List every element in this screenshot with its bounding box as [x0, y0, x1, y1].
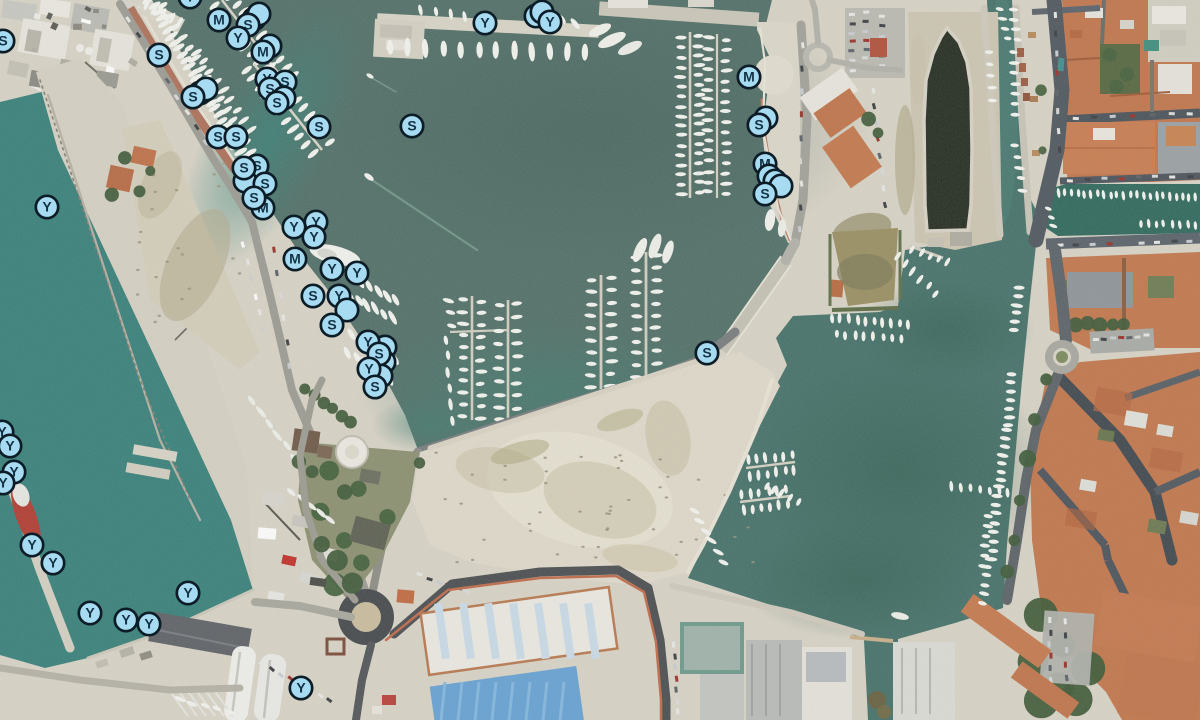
svg-text:S: S — [407, 118, 416, 134]
svg-text:Y: Y — [121, 612, 131, 628]
svg-text:Y: Y — [144, 616, 154, 632]
svg-text:S: S — [754, 117, 763, 133]
svg-text:Y: Y — [183, 585, 193, 601]
svg-text:S: S — [231, 129, 240, 145]
svg-text:M: M — [289, 251, 301, 267]
svg-text:S: S — [154, 47, 163, 63]
svg-text:Y: Y — [5, 438, 15, 454]
svg-text:Y: Y — [42, 199, 52, 215]
svg-text:Y: Y — [85, 605, 95, 621]
svg-text:Y: Y — [352, 265, 362, 281]
svg-text:M: M — [257, 44, 269, 60]
svg-text:Y: Y — [27, 537, 37, 553]
svg-text:Y: Y — [289, 219, 299, 235]
svg-text:S: S — [308, 288, 317, 304]
svg-text:S: S — [702, 345, 711, 361]
svg-text:S: S — [239, 160, 248, 176]
svg-text:M: M — [213, 12, 225, 28]
svg-text:S: S — [272, 95, 281, 111]
svg-text:S: S — [314, 119, 323, 135]
svg-text:S: S — [370, 379, 379, 395]
svg-text:Y: Y — [185, 0, 195, 5]
svg-text:S: S — [760, 186, 769, 202]
svg-text:Y: Y — [0, 475, 8, 491]
svg-text:Y: Y — [48, 555, 58, 571]
svg-text:S: S — [213, 129, 222, 145]
svg-text:S: S — [327, 317, 336, 333]
svg-text:Y: Y — [296, 680, 306, 696]
svg-text:Y: Y — [327, 261, 337, 277]
svg-text:Y: Y — [364, 361, 374, 377]
svg-text:Y: Y — [545, 14, 555, 30]
svg-text:M: M — [743, 69, 755, 85]
svg-text:Y: Y — [233, 30, 243, 46]
svg-text:Y: Y — [309, 229, 319, 245]
svg-text:Y: Y — [480, 15, 490, 31]
svg-text:S: S — [249, 190, 258, 206]
svg-text:S: S — [188, 89, 197, 105]
svg-text:S: S — [0, 33, 8, 49]
